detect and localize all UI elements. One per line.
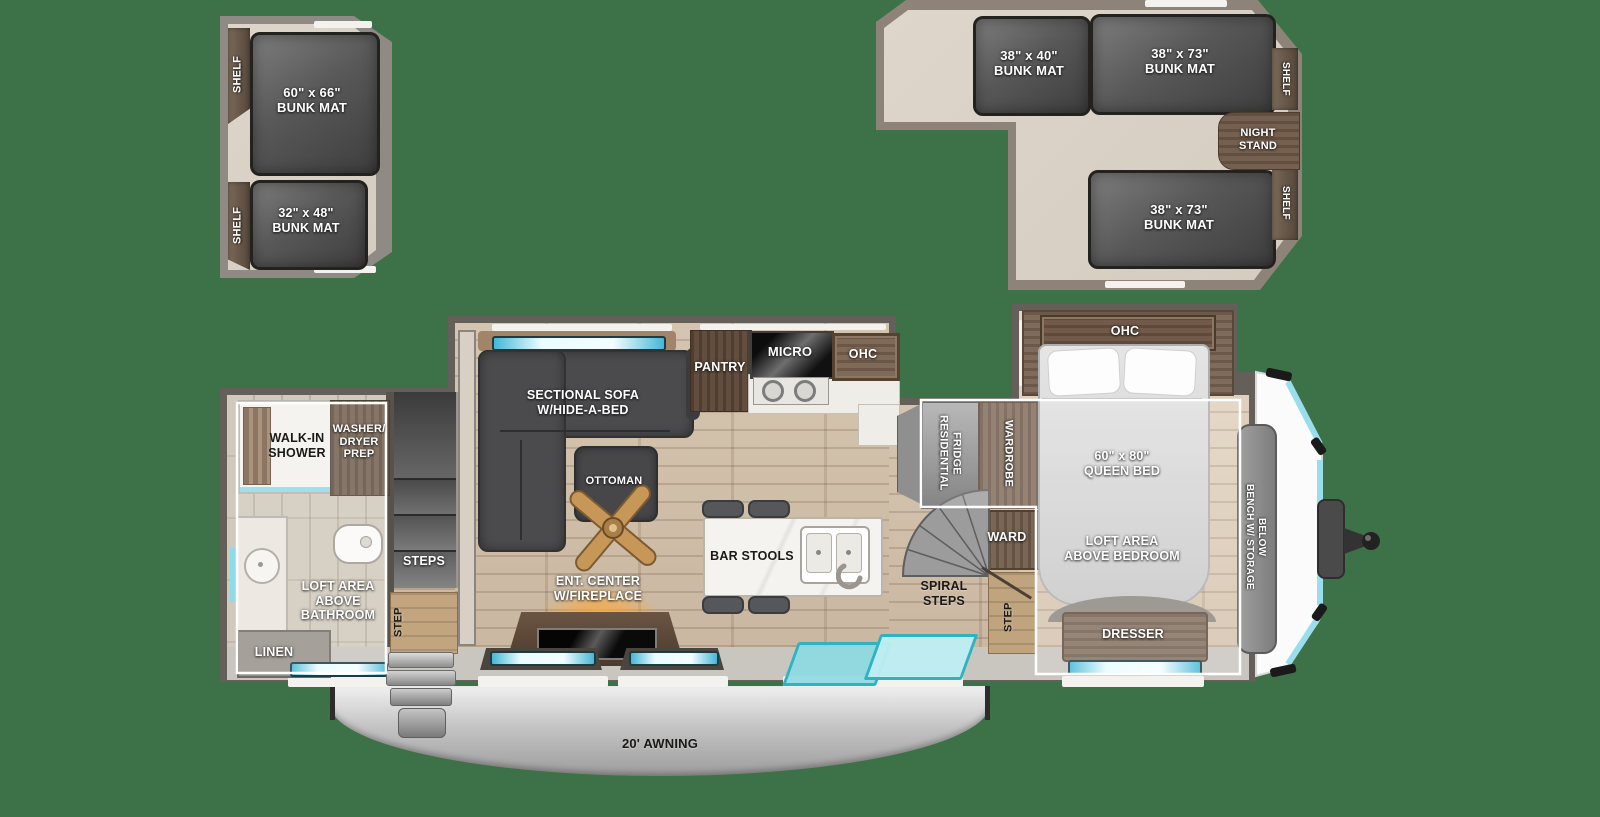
front-loft-night-stand	[1218, 112, 1300, 170]
microwave	[750, 331, 834, 379]
pillow-left	[1047, 347, 1121, 397]
sill-bedroom	[1062, 676, 1204, 687]
bedroom-bottom-window	[1068, 660, 1202, 675]
front-loft-bunk-right	[1090, 14, 1276, 115]
sofa-seam-horizontal	[500, 430, 670, 432]
entry-door-panel-right	[864, 634, 979, 680]
exterior-step-3	[390, 688, 452, 706]
sill-window-a	[478, 676, 608, 687]
pillow-right	[1123, 347, 1197, 397]
toilet-flush	[360, 536, 372, 548]
shower-towel-rack	[243, 407, 271, 485]
ceiling-fan-icon	[548, 468, 678, 588]
exterior-step-1	[388, 652, 454, 668]
bathroom-bottom-window	[290, 662, 388, 677]
front-loft-window-top	[1145, 0, 1227, 7]
front-loft-shelf-bottom	[1272, 168, 1298, 240]
rear-loft-bunk-large	[250, 32, 380, 176]
pantry-cabinet	[690, 330, 752, 412]
rear-loft-shelf-bottom	[228, 182, 250, 270]
awning-end-right	[985, 686, 990, 720]
faucet-icon	[836, 562, 868, 594]
kitchen-ohc-cabinet	[832, 333, 900, 381]
window-b-glass	[629, 651, 719, 666]
floorplan-canvas: SHELF SHELF 60" x 66" BUNK MAT 32" x 48"…	[0, 0, 1600, 817]
sofa-slide-wall	[458, 330, 476, 646]
sofa-slide-window	[492, 336, 666, 351]
front-loft-bunk-left	[973, 16, 1091, 116]
window-a-glass	[490, 651, 596, 666]
rear-loft-shelf-top	[228, 28, 250, 124]
sill-window-b	[618, 676, 728, 687]
bar-stool-3	[702, 596, 744, 614]
entry-step-landing	[390, 592, 458, 654]
bathroom-side-window	[230, 548, 236, 602]
front-loft-bunk-lower	[1088, 170, 1276, 269]
bench-with-storage	[1237, 424, 1277, 654]
front-loft-shelf-top	[1272, 48, 1298, 110]
hitch-box	[1318, 500, 1344, 578]
sink-drain-right	[846, 550, 851, 555]
washer-dryer-cabinet	[330, 400, 390, 496]
shower-glass-strip	[240, 487, 342, 492]
bed-sheet-fold	[1042, 398, 1202, 400]
stove-burner-right	[794, 380, 816, 402]
rear-loft-window-top	[314, 21, 372, 28]
sofa-slide-trim	[492, 324, 672, 331]
vanity-sink-drain	[258, 562, 263, 567]
dresser	[1062, 612, 1208, 662]
spiral-steps-icon	[893, 488, 993, 580]
awning-end-left	[330, 686, 335, 720]
toilet	[333, 524, 383, 564]
rear-loft-bunk-small	[250, 180, 368, 270]
loft-stairs	[394, 392, 459, 588]
bar-stool-1	[702, 500, 744, 518]
stove-burner-left	[762, 380, 784, 402]
sink-drain-left	[816, 550, 821, 555]
sofa-seam-vertical	[520, 440, 522, 540]
exterior-step-2	[386, 670, 456, 686]
front-loft-window-bottom	[1105, 281, 1185, 288]
kitchen-counter-return	[858, 404, 900, 446]
exterior-step-4	[398, 708, 446, 738]
bar-stool-4	[748, 596, 790, 614]
bar-stool-2	[748, 500, 790, 518]
